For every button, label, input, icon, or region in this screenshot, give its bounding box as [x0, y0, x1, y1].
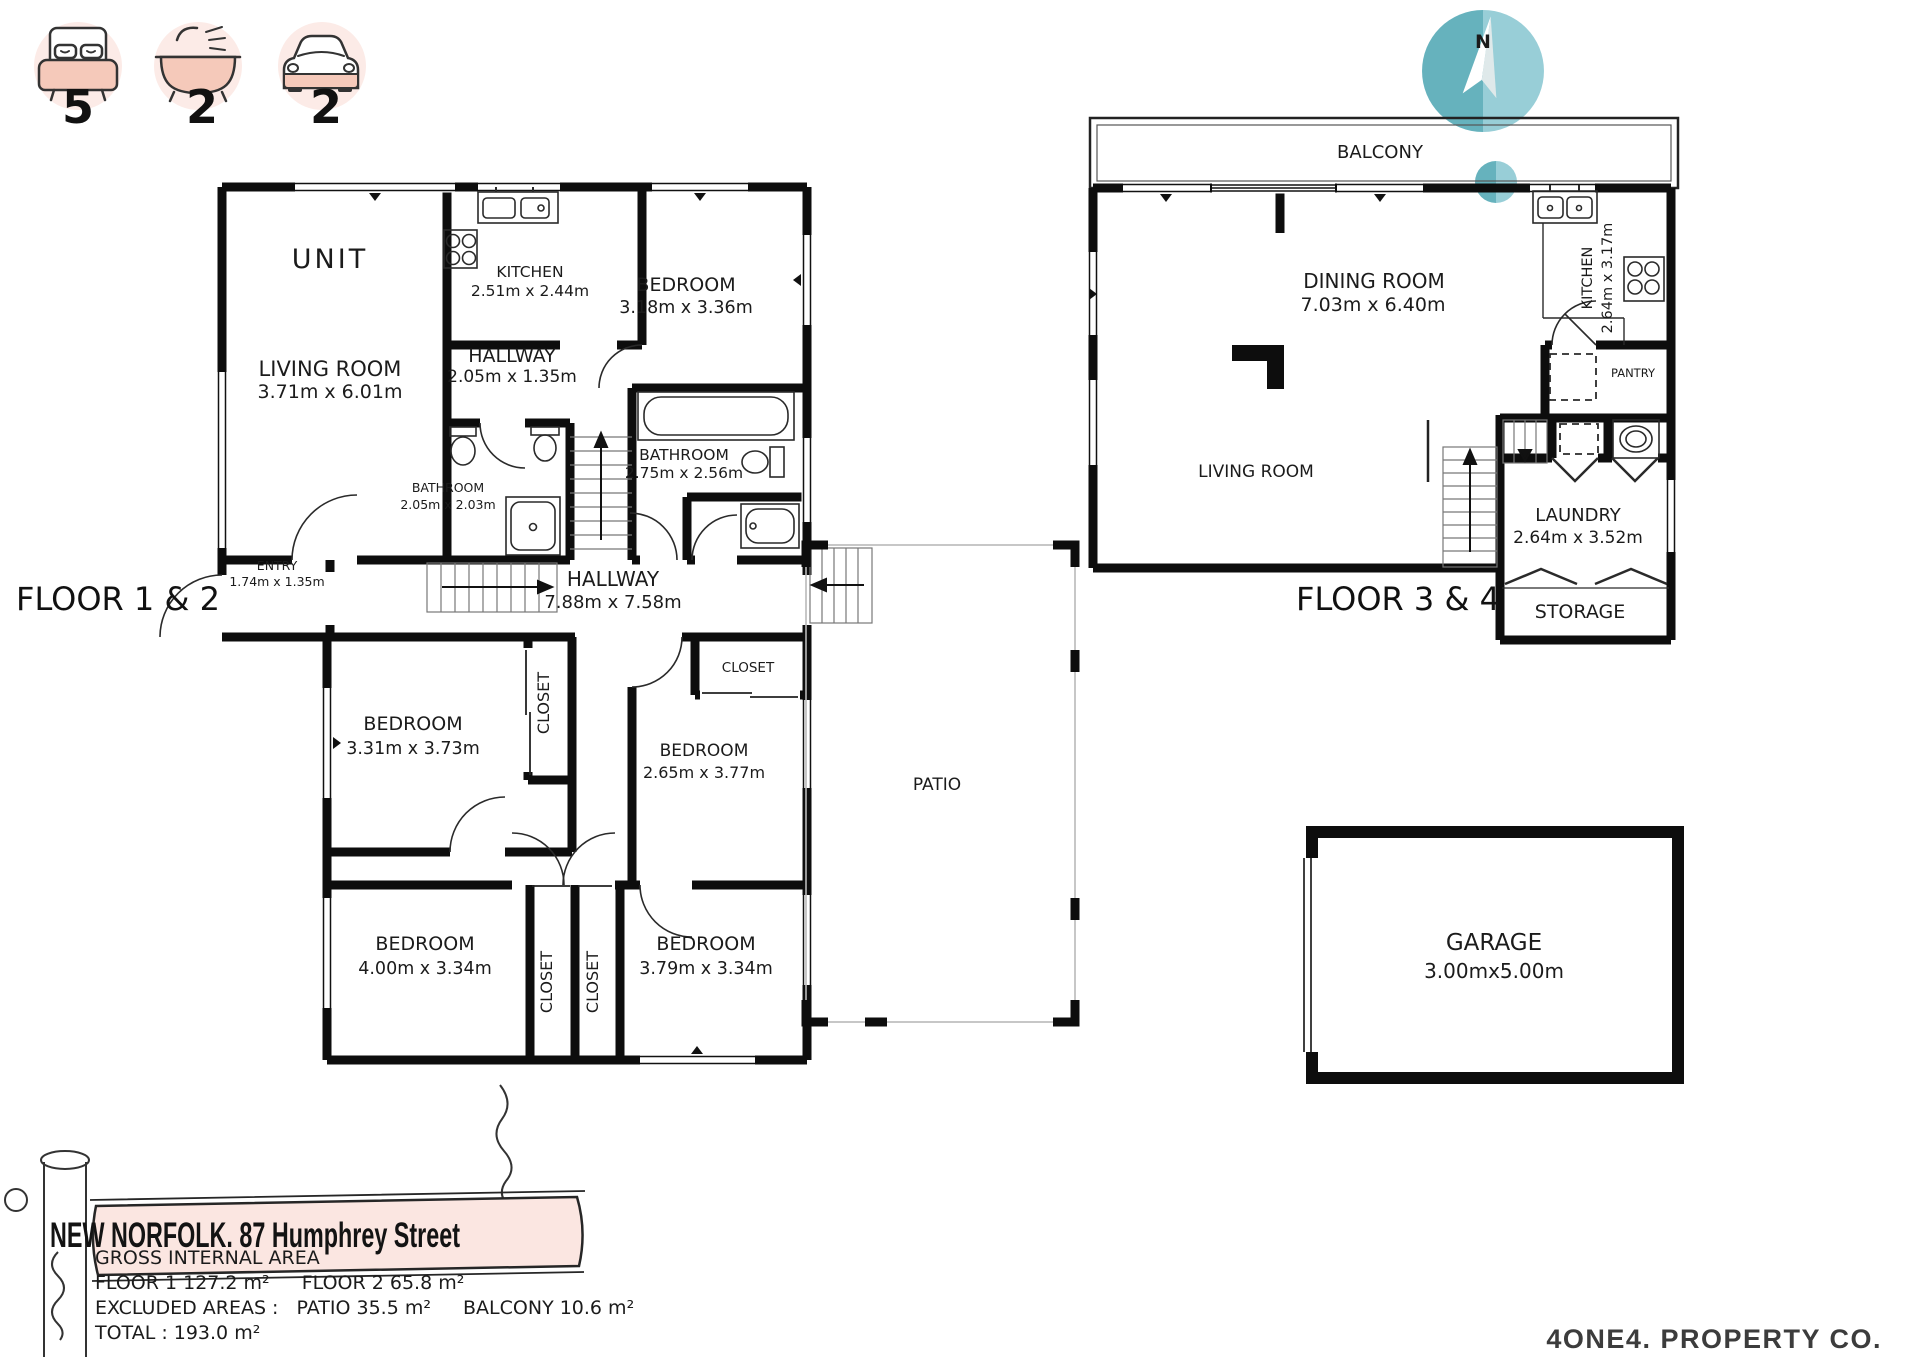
- area-balcony: BALCONY 10.6 m²: [463, 1297, 634, 1319]
- room-dims-hallway1: 2.05m x 1.35m: [447, 367, 577, 387]
- room-label-kitchen12: KITCHEN: [496, 263, 563, 281]
- room-label-laundry: LAUNDRY: [1535, 505, 1622, 526]
- brand-logo: 4ONE4. PROPERTY CO.: [1546, 1324, 1882, 1355]
- room-dims-bedroom5: 3.79m x 3.34m: [639, 959, 773, 979]
- closet-label-3: CLOSET: [537, 951, 556, 1013]
- garage-dims: 3.00mx5.00m: [1424, 959, 1564, 983]
- floor12-title: FLOOR 1 & 2: [16, 580, 220, 618]
- room-dims-bedroom1: 3.18m x 3.36m: [619, 298, 753, 318]
- floorplan-canvas: 5 2 2 N: [0, 0, 1920, 1357]
- floor-3-4-plan: BALCONY: [1088, 118, 1679, 640]
- room-label-bedroom5: BEDROOM: [656, 933, 755, 955]
- compass: N: [1422, 10, 1544, 203]
- area-patio: PATIO 35.5 m²: [297, 1297, 431, 1319]
- area-total: TOTAL : 193.0 m²: [95, 1322, 666, 1344]
- room-dims-living: 3.71m x 6.01m: [258, 381, 403, 403]
- area-heading: GROSS INTERNAL AREA: [95, 1247, 666, 1269]
- room-label-bedroom1: BEDROOM: [636, 274, 735, 296]
- floorplan-page: 5 2 2 N: [0, 0, 1920, 1357]
- room-dims-hallway2: 7.88m x 7.58m: [544, 592, 681, 613]
- room-label-bathroom-small: BATHROOM: [412, 480, 484, 495]
- bathroom-count: 2: [186, 80, 218, 134]
- floor-1-2-plan: UNIT LIVING ROOM 3.71m x 6.01m KITCHEN 2…: [16, 182, 872, 1066]
- floor34-title: FLOOR 3 & 4: [1296, 580, 1500, 618]
- room-label-living34: LIVING ROOM: [1198, 462, 1314, 482]
- area-excluded-label: EXCLUDED AREAS :: [95, 1297, 278, 1319]
- compass-north-label: N: [1475, 31, 1491, 53]
- floor34-fireplace: [1232, 345, 1284, 389]
- room-label-living: LIVING ROOM: [259, 357, 402, 381]
- room-dims-bathroom-main: 2.75m x 2.56m: [625, 464, 743, 482]
- patio-label: PATIO: [913, 775, 961, 795]
- room-dims-dining: 7.03m x 6.40m: [1301, 294, 1446, 316]
- room-label-hallway1: HALLWAY: [468, 345, 556, 367]
- room-label-bedroom2: BEDROOM: [363, 713, 462, 735]
- room-label-hallway2: HALLWAY: [567, 567, 660, 591]
- balcony-label: BALCONY: [1337, 142, 1424, 163]
- garage-label: GARAGE: [1446, 930, 1542, 956]
- room-dims-kitchen34: 2.64m x 3.17m: [1600, 223, 1616, 334]
- room-label-entry: ENTRY: [257, 558, 298, 573]
- room-dims-bedroom3: 2.65m x 3.77m: [643, 763, 765, 782]
- floor34-windows: [1088, 183, 1677, 553]
- stat-bedrooms: 5: [34, 22, 122, 134]
- closet-label-2: CLOSET: [722, 660, 775, 676]
- pantry-label: PANTRY: [1611, 366, 1656, 380]
- room-dims-laundry: 2.64m x 3.52m: [1513, 528, 1643, 548]
- room-dims-bedroom4: 4.00m x 3.34m: [358, 959, 492, 979]
- room-dims-bathroom-small: 2.05m x 2.03m: [400, 497, 495, 512]
- room-label-unit: UNIT: [292, 244, 368, 275]
- room-label-bathroom-main: BATHROOM: [639, 446, 729, 464]
- car-count: 2: [310, 80, 342, 134]
- closet-label-1: CLOSET: [534, 672, 553, 734]
- stat-cars: 2: [278, 22, 366, 134]
- room-label-dining: DINING ROOM: [1303, 269, 1445, 293]
- garage: GARAGE 3.00mx5.00m: [1304, 832, 1678, 1078]
- storage-label: STORAGE: [1535, 601, 1625, 623]
- room-dims-kitchen12: 2.51m x 2.44m: [471, 282, 589, 300]
- room-dims-bedroom2: 3.31m x 3.73m: [346, 739, 480, 759]
- room-dims-entry: 1.74m x 1.35m: [229, 574, 324, 589]
- area-summary: GROSS INTERNAL AREA FLOOR 1 127.2 m² FLO…: [95, 1247, 666, 1357]
- room-label-kitchen34: KITCHEN: [1580, 247, 1596, 310]
- area-floor2: FLOOR 2 65.8 m²: [302, 1272, 465, 1294]
- window-arrows: [333, 193, 801, 1054]
- bedroom-count: 5: [62, 80, 94, 134]
- room-label-bedroom3: BEDROOM: [660, 741, 749, 761]
- closet-label-4: CLOSET: [583, 951, 602, 1013]
- area-floor1: FLOOR 1 127.2 m²: [95, 1272, 270, 1294]
- balcony: BALCONY: [1090, 118, 1678, 188]
- stat-bathrooms: 2: [154, 22, 242, 134]
- room-label-bedroom4: BEDROOM: [375, 933, 474, 955]
